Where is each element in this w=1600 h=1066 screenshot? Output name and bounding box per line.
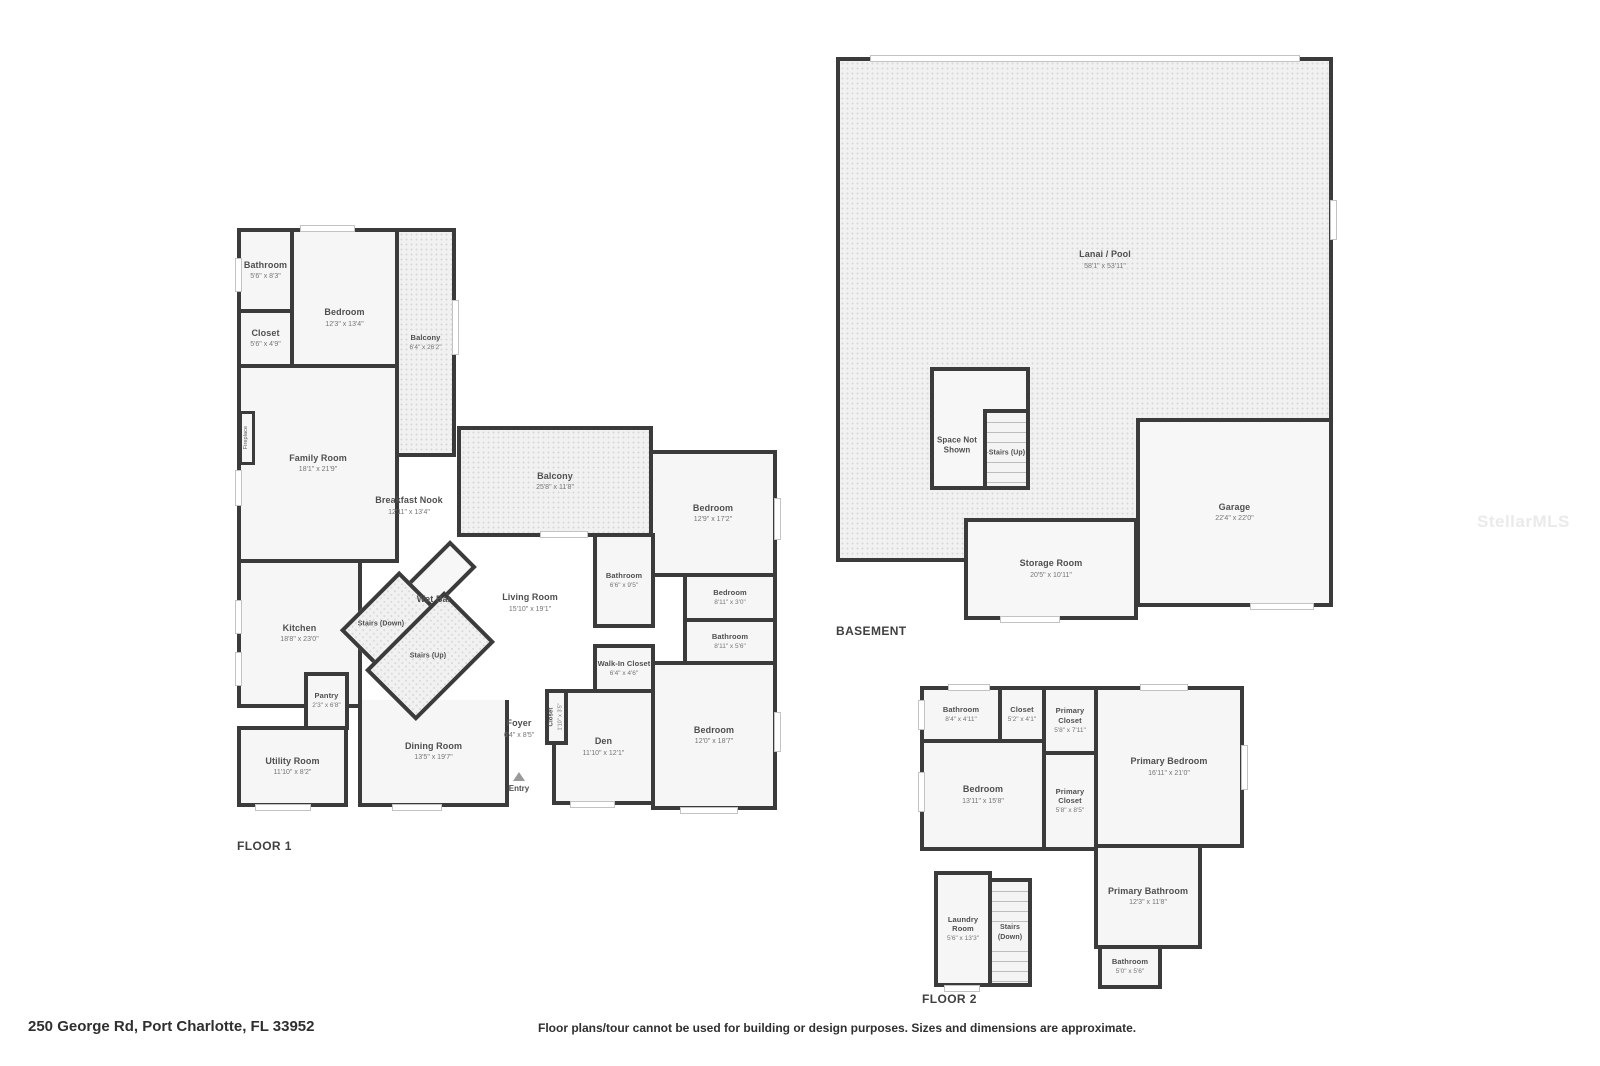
room-label: Garage22'4" x 22'0" <box>1215 502 1253 524</box>
floor1-bedroom-small: Bedroom8'11" x 3'0" <box>683 573 777 622</box>
room-label: Dining Room13'5" x 19'7" <box>405 741 462 763</box>
room-label: Storage Room20'5" x 10'11" <box>1020 558 1083 580</box>
room-label: Pantry2'3" x 6'8" <box>312 691 340 710</box>
window <box>948 684 990 691</box>
window <box>300 225 355 232</box>
floor1-balcony-side: Balcony6'4" x 26'2" <box>395 228 456 457</box>
basement-storage-room: Storage Room20'5" x 10'11" <box>964 518 1138 620</box>
room-label: Kitchen18'8" x 23'0" <box>280 623 318 645</box>
room-label: Laundry Room5'6" x 13'3" <box>938 915 988 944</box>
room-label: Closet1'10" x 3'5" <box>549 703 565 730</box>
window <box>540 531 588 538</box>
room-label: Primary Closet5'8" x 8'5" <box>1046 787 1094 816</box>
floor1-wet-bar-label: Wet Bar <box>417 594 452 606</box>
window <box>1241 745 1248 790</box>
room-label: Balcony25'8" x 11'8" <box>536 471 574 493</box>
floor1-entry-label: Entry <box>509 784 529 793</box>
floor1-bedroom-bottom: Bedroom12'0" x 18'7" <box>651 661 777 810</box>
floor1-breakfast-nook-label: Breakfast Nook12'11" x 13'4" <box>375 495 442 517</box>
floor1-bathroom-mid: Bathroom6'6" x 9'5" <box>593 533 655 628</box>
room-label: Bedroom13'11" x 15'8" <box>962 784 1004 806</box>
room-label: Bathroom8'11" x 5'6" <box>712 632 748 651</box>
room-label: Bathroom8'4" x 4'11" <box>943 705 979 724</box>
window <box>774 498 781 540</box>
floor-plan-page: Bathroom5'6" x 8'3" Bedroom12'3" x 13'4"… <box>0 0 1600 1066</box>
room-label: Walk-In Closet6'4" x 4'6" <box>598 659 651 678</box>
floor1-balcony-rear: Balcony25'8" x 11'8" <box>457 426 653 537</box>
property-address: 250 George Rd, Port Charlotte, FL 33952 <box>28 1018 314 1035</box>
window <box>680 807 738 814</box>
floor2-laundry-room: Laundry Room5'6" x 13'3" <box>934 871 992 987</box>
room-label: Bedroom12'9" x 17'2" <box>693 503 733 525</box>
floor2-title: FLOOR 2 <box>922 992 977 1006</box>
window <box>255 804 311 811</box>
room-label: Stairs (Down) <box>992 923 1028 941</box>
window <box>918 700 925 730</box>
floor1-family-room: Family Room18'1" x 21'9" <box>237 364 399 563</box>
floor2-bathroom-bottom: Bathroom5'0" x 5'6" <box>1098 945 1162 989</box>
room-label: Bathroom5'6" x 8'3" <box>244 260 287 282</box>
window <box>392 804 442 811</box>
entry-arrow-icon <box>513 772 525 781</box>
window <box>1000 616 1060 623</box>
window <box>1330 200 1337 240</box>
floor1-stairs-down-label: Stairs (Down) <box>358 619 404 628</box>
room-label: Family Room18'1" x 21'9" <box>289 453 347 475</box>
room-label: Balcony6'4" x 26'2" <box>409 333 441 352</box>
window <box>774 712 781 752</box>
window <box>235 470 242 506</box>
room-label: Primary Bedroom16'11" x 21'0" <box>1130 756 1207 778</box>
floor1-closet-den: Closet1'10" x 3'5" <box>545 689 568 745</box>
floor1-stairs-up-label: Stairs (Up) <box>410 651 447 660</box>
floor2-primary-closet-bottom: Primary Closet5'8" x 8'5" <box>1042 751 1098 851</box>
window <box>870 55 1300 62</box>
window <box>235 258 242 292</box>
floor2-stairs-down: Stairs (Down) <box>988 878 1032 987</box>
room-label: Bedroom12'0" x 18'7" <box>694 725 734 747</box>
floor1-closet-top: Closet5'6" x 4'9" <box>237 309 294 368</box>
floor1-walk-in-closet: Walk-In Closet6'4" x 4'6" <box>593 644 655 693</box>
room-label: Closet5'2" x 4'1" <box>1008 705 1036 724</box>
room-label: Closet5'6" x 4'9" <box>250 328 281 350</box>
window <box>944 985 980 992</box>
room-label: Bedroom8'11" x 3'0" <box>713 588 747 607</box>
basement-space-not-shown-label: Space Not Shown <box>925 436 989 457</box>
room-label: Bedroom12'3" x 13'4" <box>324 307 364 329</box>
floor1-bathroom-small: Bathroom8'11" x 5'6" <box>683 618 777 665</box>
floor1-bedroom-right: Bedroom12'9" x 17'2" <box>649 450 777 577</box>
window <box>235 652 242 686</box>
floor1-foyer-label: Foyer6'4" x 8'5" <box>504 718 535 740</box>
basement-lanai-pool-label: Lanai / Pool58'1" x 53'11" <box>1079 249 1131 271</box>
room-label: Primary Bathroom12'3" x 11'8" <box>1108 886 1188 908</box>
floor2-primary-bedroom: Primary Bedroom16'11" x 21'0" <box>1094 686 1244 848</box>
window <box>235 600 242 634</box>
garage-door-opening <box>1250 603 1314 610</box>
floor1-title: FLOOR 1 <box>237 839 292 853</box>
floor2-closet: Closet5'2" x 4'1" <box>998 686 1046 743</box>
basement-title: BASEMENT <box>836 624 907 638</box>
room-label: Bathroom5'0" x 5'6" <box>1112 957 1148 976</box>
floor1-fireplace: Fireplace <box>239 411 255 465</box>
floor2-bathroom-top: Bathroom8'4" x 4'11" <box>920 686 1002 743</box>
window <box>918 772 925 812</box>
floor1-pantry: Pantry2'3" x 6'8" <box>304 672 349 730</box>
floor1-dining-room: Dining Room13'5" x 19'7" <box>358 700 509 807</box>
floor2-primary-closet-top: Primary Closet5'8" x 7'11" <box>1042 686 1098 755</box>
window <box>452 300 459 355</box>
floor1-bathroom-top: Bathroom5'6" x 8'3" <box>237 228 294 313</box>
basement-stairs-up-label: Stairs (Up) <box>989 448 1026 457</box>
stellar-mls-watermark: StellarMLS <box>1477 512 1570 532</box>
window <box>1140 684 1188 691</box>
room-label: Utility Room11'10" x 8'2" <box>265 756 319 778</box>
floor2-bedroom: Bedroom13'11" x 15'8" <box>920 739 1046 851</box>
floor2-primary-bathroom: Primary Bathroom12'3" x 11'8" <box>1094 844 1202 949</box>
floor1-living-room-label: Living Room15'10" x 19'1" <box>502 592 558 614</box>
room-label: Primary Closet5'8" x 7'11" <box>1046 706 1094 735</box>
disclaimer-text: Floor plans/tour cannot be used for buil… <box>538 1021 1136 1035</box>
room-label: Den11'10" x 12'1" <box>583 736 625 758</box>
room-label: Fireplace <box>243 426 250 450</box>
window <box>570 801 615 808</box>
basement-garage: Garage22'4" x 22'0" <box>1136 418 1333 607</box>
room-label: Bathroom6'6" x 9'5" <box>606 571 642 590</box>
floor1-utility-room: Utility Room11'10" x 8'2" <box>237 726 348 807</box>
